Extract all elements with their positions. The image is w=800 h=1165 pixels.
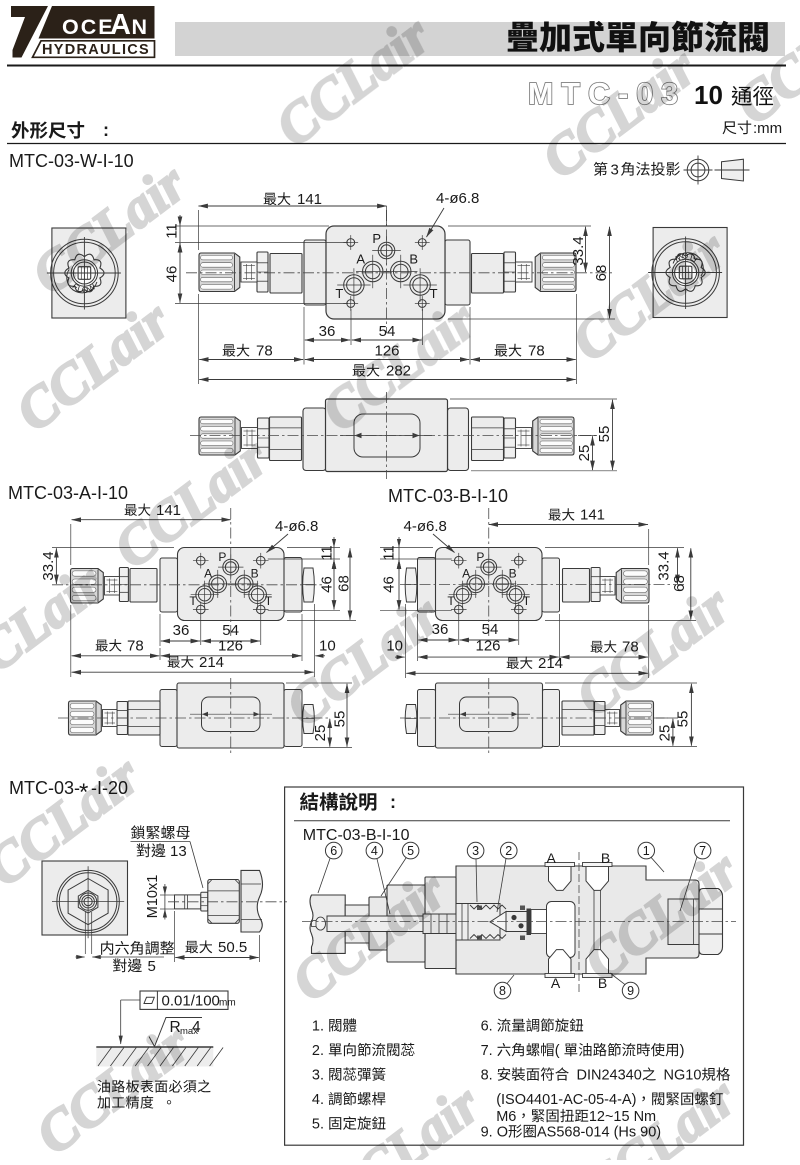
svg-text:T: T: [335, 286, 343, 301]
svg-text:78: 78: [528, 343, 545, 360]
svg-text:B: B: [251, 567, 259, 581]
svg-text:HYDRAULICS: HYDRAULICS: [42, 42, 150, 58]
svg-text:CCLair: CCLair: [725, 0, 800, 137]
svg-text:(: (: [555, 1043, 560, 1059]
svg-text:A: A: [462, 567, 470, 581]
svg-text:36: 36: [173, 622, 190, 639]
svg-text:8: 8: [499, 984, 506, 998]
svg-text:MTC-03-B-I-10: MTC-03-B-I-10: [388, 486, 508, 506]
svg-text:7.: 7.: [481, 1043, 493, 1059]
svg-text:11: 11: [381, 545, 398, 561]
svg-text:A: A: [547, 850, 557, 866]
svg-text:3.: 3.: [312, 1068, 324, 1084]
svg-text:N: N: [132, 15, 148, 39]
svg-text:M10x1: M10x1: [145, 875, 161, 919]
svg-text:9: 9: [627, 984, 634, 998]
svg-text:OCE: OCE: [62, 15, 115, 39]
svg-text:MTC-03-B-I-10: MTC-03-B-I-10: [303, 827, 410, 844]
svg-text:A: A: [204, 567, 212, 581]
svg-text:55: 55: [675, 711, 692, 728]
svg-text:68: 68: [336, 575, 353, 592]
svg-text:36: 36: [319, 323, 336, 340]
svg-text:141: 141: [297, 191, 322, 208]
svg-text:25: 25: [657, 725, 674, 742]
svg-text:4: 4: [192, 1019, 201, 1036]
svg-text:126: 126: [218, 637, 243, 654]
svg-text:3: 3: [472, 844, 479, 858]
svg-text:4-ø6.8: 4-ø6.8: [404, 518, 447, 535]
svg-text:0.01/100: 0.01/100: [162, 993, 220, 1010]
svg-text:T: T: [189, 594, 197, 608]
svg-text:78: 78: [127, 637, 144, 654]
svg-text:M6: M6: [496, 1109, 516, 1125]
svg-text:46: 46: [381, 576, 398, 593]
svg-text:5: 5: [148, 958, 156, 975]
svg-text:55: 55: [596, 426, 613, 443]
svg-text:50.5: 50.5: [218, 939, 247, 956]
svg-text:A: A: [110, 9, 131, 41]
svg-text:78: 78: [256, 343, 273, 360]
svg-text:B: B: [509, 567, 517, 581]
svg-text:MTC-03-W-I-10: MTC-03-W-I-10: [9, 151, 134, 171]
svg-text:1: 1: [643, 844, 650, 858]
svg-text:13: 13: [170, 843, 187, 860]
svg-text:33.4: 33.4: [656, 551, 673, 580]
svg-text:DIN24340: DIN24340: [576, 1068, 641, 1084]
svg-text:P: P: [218, 550, 226, 564]
svg-text:B: B: [601, 850, 610, 866]
svg-text:T: T: [265, 594, 273, 608]
svg-text:B: B: [409, 252, 418, 267]
svg-text:(ISO4401-AC-05-4-A): (ISO4401-AC-05-4-A): [496, 1092, 636, 1108]
svg-text:4-ø6.8: 4-ø6.8: [275, 518, 318, 535]
svg-text:5: 5: [407, 844, 414, 858]
svg-text:CCLair: CCLair: [531, 36, 708, 191]
svg-text:CCLair: CCLair: [315, 1073, 492, 1160]
svg-text:46: 46: [319, 576, 336, 593]
svg-text:2: 2: [505, 844, 512, 858]
svg-text:46: 46: [164, 266, 181, 283]
svg-text:11: 11: [319, 545, 336, 561]
svg-text:68: 68: [593, 265, 610, 282]
svg-text:6.: 6.: [481, 1019, 493, 1035]
svg-text:mm: mm: [219, 998, 236, 1009]
svg-text::: :: [103, 120, 109, 140]
svg-text:126: 126: [475, 638, 500, 655]
svg-text::: :: [390, 792, 396, 812]
svg-text:A: A: [551, 975, 561, 991]
svg-text:1.: 1.: [312, 1019, 324, 1035]
svg-text:MTC-03-A-I-10: MTC-03-A-I-10: [8, 483, 128, 503]
svg-text:4: 4: [371, 844, 378, 858]
svg-text:8.: 8.: [481, 1068, 493, 1084]
svg-text:A: A: [356, 252, 365, 267]
svg-text:141: 141: [580, 507, 605, 524]
svg-text:T: T: [523, 594, 531, 608]
svg-text:): ): [680, 1043, 685, 1059]
svg-text:P: P: [372, 231, 381, 246]
svg-text:25: 25: [576, 445, 593, 462]
svg-text:4-ø6.8: 4-ø6.8: [436, 190, 479, 207]
svg-text:2.: 2.: [312, 1043, 324, 1059]
svg-text:5.: 5.: [312, 1117, 324, 1133]
svg-text:214: 214: [199, 654, 224, 671]
svg-text:P: P: [476, 550, 484, 564]
svg-text:54: 54: [482, 621, 499, 638]
svg-text:3: 3: [611, 162, 619, 179]
svg-text:33.4: 33.4: [570, 236, 587, 265]
svg-text:4.: 4.: [312, 1092, 324, 1108]
svg-text:CCLair: CCLair: [25, 1012, 202, 1160]
svg-text:6: 6: [330, 844, 337, 858]
svg-text:T: T: [447, 594, 455, 608]
svg-text:214: 214: [538, 655, 563, 672]
